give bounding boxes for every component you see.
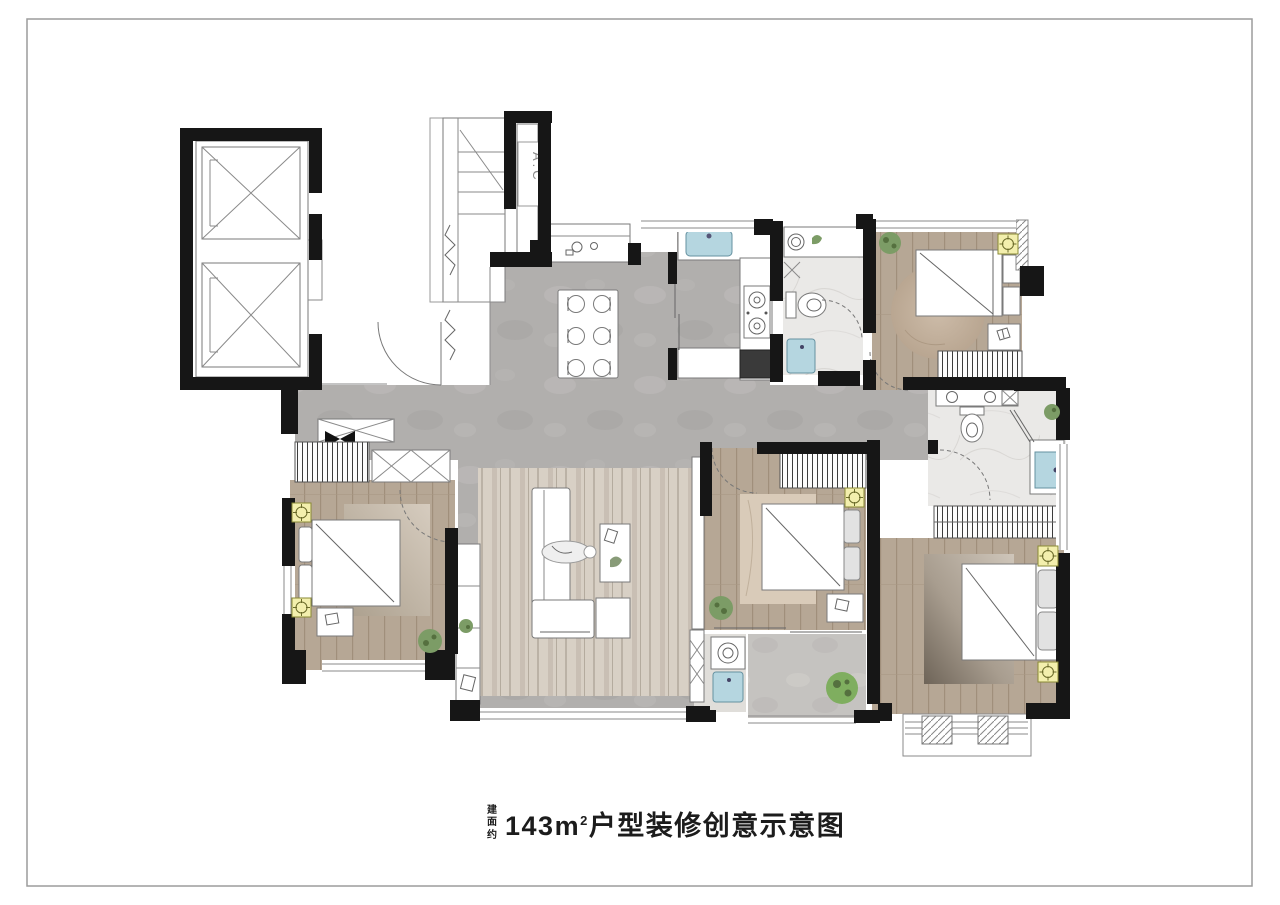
elevator-car-2 (202, 263, 300, 367)
nightstand (1003, 287, 1020, 315)
caption-suffix: 户型装修创意示意图 (589, 811, 846, 841)
fridge (740, 350, 772, 378)
laundry-sink (713, 672, 743, 702)
desk (988, 324, 1020, 350)
window-bedroom-left-bottom (322, 660, 425, 676)
bath-counter (784, 227, 864, 257)
side-table (596, 598, 630, 638)
plant-icon (879, 232, 901, 254)
pillow (299, 565, 312, 600)
foyer-cabinet (372, 450, 450, 482)
caption-area-number: 143 (505, 811, 555, 841)
sideboard (548, 224, 630, 262)
plant-icon (418, 629, 442, 653)
elevator-block (196, 141, 322, 377)
laundry-room (711, 637, 745, 702)
planter-box (922, 716, 952, 744)
stove (744, 286, 770, 338)
ceiling-lamp-icon (1038, 546, 1058, 566)
kitchen-cabinet (678, 348, 740, 378)
caption-text: 143m2户型装修创意示意图 (505, 804, 845, 843)
pillow (1038, 612, 1058, 650)
window-master-bath-side (1056, 444, 1070, 550)
plant-icon (826, 672, 858, 704)
wardrobe (295, 442, 369, 482)
window-kitchen (641, 217, 754, 232)
plant-icon (709, 596, 733, 620)
toilet (786, 292, 826, 318)
pillow (1038, 570, 1058, 608)
ceiling-lamp-icon (1038, 662, 1058, 682)
pillow (844, 510, 860, 543)
caption-prefix: 建面约 (487, 805, 498, 843)
nightstand (317, 608, 353, 636)
lobby-strip (430, 118, 443, 302)
ceiling-lamp-icon (845, 488, 864, 507)
living-rug (478, 468, 692, 696)
closet-body (443, 118, 505, 302)
ceiling-lamp-icon (292, 598, 311, 617)
elevator-car-1 (202, 147, 300, 239)
walk-in-wardrobe (934, 506, 1066, 538)
caption-area-sup: 2 (580, 813, 589, 828)
bath-sink (787, 339, 815, 373)
toilet (960, 407, 984, 442)
plant-icon (1044, 404, 1060, 420)
nightstand (827, 594, 863, 622)
dining-room (548, 224, 630, 378)
ceiling-lamp-icon (998, 234, 1018, 254)
planter-box (978, 716, 1008, 744)
mirror-cabinet (1002, 390, 1018, 405)
wardrobe (780, 452, 866, 488)
plant-icon (459, 619, 473, 633)
ceiling-lamp-icon (292, 503, 311, 522)
caption-area-unit: m (555, 811, 581, 841)
floor-plan-canvas: A.C (0, 0, 1280, 905)
washing-machine (711, 637, 745, 669)
pillow (299, 527, 312, 562)
window-living-bottom (480, 708, 686, 724)
coffee-table (600, 524, 630, 582)
pillow (844, 547, 860, 580)
caption: 建面约 143m2户型装修创意示意图 (487, 804, 845, 843)
window-bedroom-top-right (876, 217, 1016, 232)
living-room (456, 457, 704, 704)
